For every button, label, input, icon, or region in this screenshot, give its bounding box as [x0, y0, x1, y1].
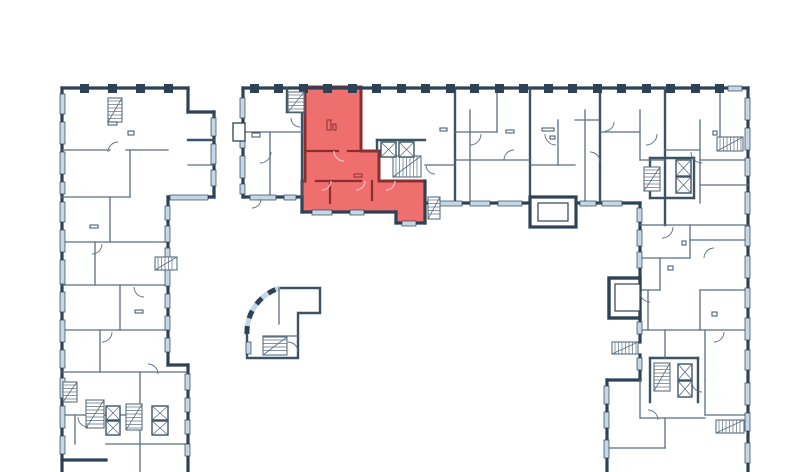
wall-pier	[691, 84, 700, 93]
window	[240, 156, 245, 178]
unit-window	[312, 210, 332, 215]
entrance-vestibule-inner	[538, 203, 568, 221]
wall-pier	[446, 84, 455, 93]
window	[185, 420, 190, 434]
window	[745, 192, 750, 214]
floor-plan-svg	[0, 0, 800, 472]
wall-pier	[274, 84, 283, 93]
unit-window	[402, 221, 416, 226]
window	[637, 230, 642, 246]
wall-pier	[136, 84, 145, 93]
wall-pier	[666, 84, 675, 93]
window	[60, 436, 65, 454]
window	[246, 342, 251, 354]
window	[637, 322, 642, 334]
wall-pier	[470, 84, 479, 93]
wall-pier	[397, 84, 406, 93]
window	[440, 201, 462, 206]
window	[165, 316, 170, 330]
window	[60, 152, 65, 174]
window	[745, 98, 750, 120]
window	[185, 398, 190, 412]
wall-pier	[372, 84, 381, 93]
floor-plan	[0, 0, 800, 472]
window	[637, 252, 642, 268]
window	[250, 195, 276, 200]
window	[498, 201, 522, 206]
window	[604, 440, 609, 458]
window	[745, 226, 750, 246]
window	[240, 98, 245, 118]
window	[745, 256, 750, 278]
window	[604, 412, 609, 428]
window	[745, 128, 750, 150]
window	[728, 86, 742, 91]
window	[637, 358, 642, 370]
window	[240, 184, 245, 194]
window	[185, 374, 190, 390]
balcony-box-inner	[615, 284, 640, 311]
wall-pier	[568, 84, 577, 93]
window	[165, 294, 170, 308]
wall-pier	[323, 84, 332, 93]
window	[60, 122, 65, 144]
window	[165, 338, 170, 352]
wall-pier	[80, 84, 89, 93]
window	[745, 288, 750, 308]
window	[60, 292, 65, 312]
window	[60, 230, 65, 252]
wall-pier	[642, 84, 651, 93]
window	[165, 270, 170, 286]
wall-pier	[108, 84, 117, 93]
wall-pier	[421, 84, 430, 93]
window	[604, 386, 609, 404]
window	[60, 320, 65, 342]
unit-window	[350, 210, 364, 215]
window	[211, 170, 216, 186]
window	[745, 158, 750, 176]
window	[745, 413, 750, 431]
wall-pier	[544, 84, 553, 93]
window	[602, 201, 622, 206]
wall-pier	[250, 84, 259, 93]
wall-pier	[519, 84, 528, 93]
wall-pier	[617, 84, 626, 93]
window	[470, 201, 490, 206]
window	[284, 195, 296, 200]
background	[0, 0, 800, 472]
window	[745, 350, 750, 370]
window	[745, 383, 750, 405]
window	[60, 182, 65, 194]
bay-window-box	[233, 123, 245, 141]
window	[60, 406, 65, 428]
window	[637, 208, 642, 222]
window	[185, 444, 190, 456]
wall-pier	[495, 84, 504, 93]
window	[170, 195, 208, 200]
wall-pier	[348, 84, 357, 93]
wall-pier	[715, 84, 724, 93]
window	[211, 118, 216, 136]
wall-pier	[164, 84, 173, 93]
window	[60, 260, 65, 284]
window	[165, 206, 170, 220]
wall-pier	[593, 84, 602, 93]
window	[165, 226, 170, 242]
window	[745, 443, 750, 463]
window	[211, 144, 216, 164]
window	[60, 202, 65, 222]
window	[60, 350, 65, 368]
window	[60, 94, 65, 114]
window	[745, 318, 750, 340]
window	[580, 201, 596, 206]
